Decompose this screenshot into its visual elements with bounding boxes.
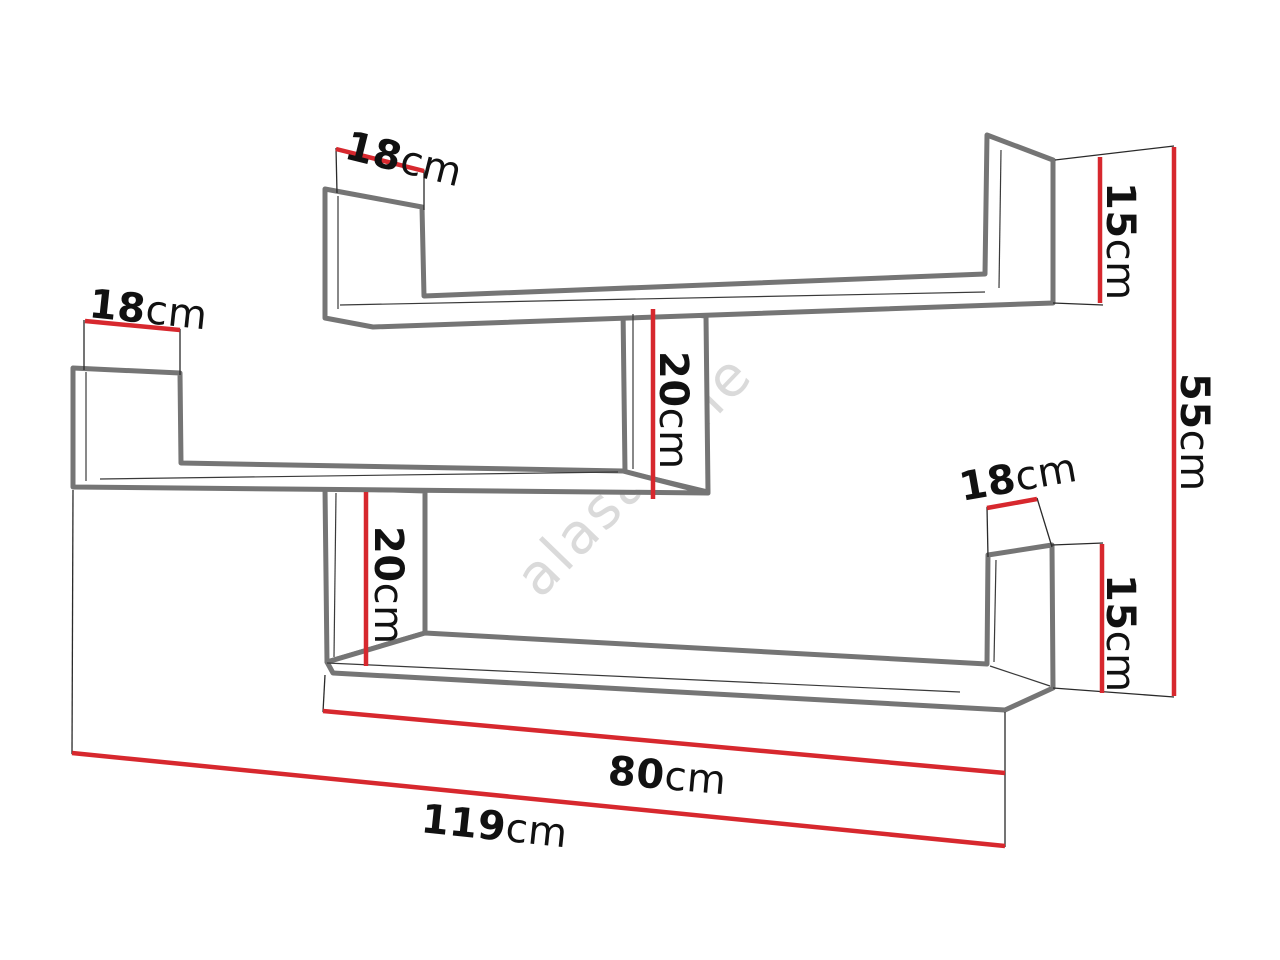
middle-shelf-outline [73, 368, 708, 493]
detail-lines [86, 150, 1050, 692]
label-bottom-shelf-width: 80cm [606, 748, 728, 804]
bottom-shelf-outline [327, 545, 1053, 710]
label-connector-left: 20cm [365, 526, 411, 645]
diagram-canvas: alasans.ie [0, 0, 1280, 960]
shelf-dimension-diagram: alasans.ie [0, 0, 1280, 960]
label-height-top-right: 15cm [1097, 182, 1143, 301]
label-total-width: 119cm [419, 796, 570, 857]
label-depth-bottom-right: 18cm [956, 445, 1081, 511]
label-depth-top: 18cm [341, 123, 467, 196]
label-connector-middle: 20cm [650, 351, 696, 470]
label-total-height: 55cm [1171, 373, 1217, 492]
label-depth-left: 18cm [87, 281, 210, 339]
label-height-bottom-right: 15cm [1097, 574, 1143, 693]
